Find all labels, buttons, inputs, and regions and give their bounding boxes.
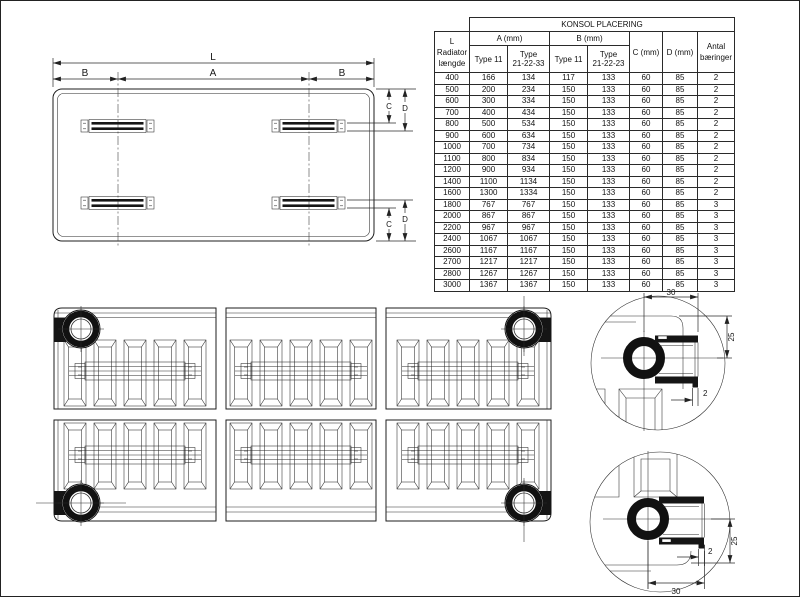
table-cell: 85 xyxy=(663,153,698,165)
table-cell: 1100 xyxy=(435,153,470,165)
table-cell: 133 xyxy=(588,165,630,177)
detail-bottom-dim-25: 25 xyxy=(730,536,739,545)
col-group-a: A (mm) xyxy=(470,32,550,46)
table-cell: 133 xyxy=(588,130,630,142)
table-cell: 1134 xyxy=(508,176,550,188)
table-row: 200086786715013360853 xyxy=(435,211,735,223)
table-cell: 1300 xyxy=(470,188,508,200)
konsol-table-body: 4001661341171336085250020023415013360852… xyxy=(435,73,735,292)
table-cell: 166 xyxy=(470,73,508,85)
table-cell: 60 xyxy=(630,211,663,223)
table-cell: 150 xyxy=(550,142,588,154)
table-cell: 1800 xyxy=(435,199,470,211)
table-cell: 2700 xyxy=(435,257,470,269)
table-cell: 800 xyxy=(435,119,470,131)
radiator-plan-view: L B A B C D xyxy=(26,41,426,271)
dim-label-c-bottom: C xyxy=(386,220,392,229)
table-cell: 85 xyxy=(663,199,698,211)
bracket-detail-callouts: 30 25 2 xyxy=(579,289,800,597)
table-row: 80050053415013360852 xyxy=(435,119,735,131)
table-cell: 60 xyxy=(630,234,663,246)
table-cell: 600 xyxy=(435,96,470,108)
table-cell: 150 xyxy=(550,234,588,246)
detail-top-background xyxy=(583,316,683,436)
table-row: 26001167116715013360853 xyxy=(435,245,735,257)
table-cell: 1367 xyxy=(508,280,550,292)
table-cell: 85 xyxy=(663,84,698,96)
table-row: 70040043415013360852 xyxy=(435,107,735,119)
table-cell: 150 xyxy=(550,165,588,177)
table-cell: 867 xyxy=(508,211,550,223)
table-cell: 133 xyxy=(588,153,630,165)
detail-bottom-background xyxy=(591,451,691,571)
table-cell: 133 xyxy=(588,176,630,188)
table-cell: 2 xyxy=(698,73,735,85)
table-cell: 400 xyxy=(435,73,470,85)
detail-bottom-bracket-profile xyxy=(603,451,729,589)
table-cell: 60 xyxy=(630,199,663,211)
table-cell: 600 xyxy=(470,130,508,142)
sub-header-b-type21: Type 21-22-23 xyxy=(588,46,630,73)
table-cell: 434 xyxy=(508,107,550,119)
konsol-placering-table: KONSOL PLACERING L Radiator længde A (mm… xyxy=(434,17,735,292)
table-cell: 150 xyxy=(550,119,588,131)
elevation-panel-middle xyxy=(226,308,376,521)
detail-top-dim-30: 30 xyxy=(667,288,676,297)
table-cell: 2 xyxy=(698,153,735,165)
table-row: 180076776715013360853 xyxy=(435,199,735,211)
table-cell: 150 xyxy=(550,96,588,108)
table-cell: 900 xyxy=(435,130,470,142)
table-row: 110080083415013360852 xyxy=(435,153,735,165)
table-cell: 1267 xyxy=(508,268,550,280)
table-cell: 2600 xyxy=(435,245,470,257)
table-cell: 2400 xyxy=(435,234,470,246)
table-cell: 85 xyxy=(663,142,698,154)
table-row: 40016613411713360852 xyxy=(435,73,735,85)
table-cell: 1334 xyxy=(508,188,550,200)
table-cell: 800 xyxy=(470,153,508,165)
table-cell: 700 xyxy=(470,142,508,154)
table-cell: 85 xyxy=(663,268,698,280)
table-row: 100070073415013360852 xyxy=(435,142,735,154)
table-cell: 60 xyxy=(630,176,663,188)
table-cell: 3 xyxy=(698,234,735,246)
table-cell: 3 xyxy=(698,245,735,257)
table-cell: 150 xyxy=(550,153,588,165)
table-cell: 133 xyxy=(588,73,630,85)
table-cell: 2 xyxy=(698,165,735,177)
table-cell: 85 xyxy=(663,257,698,269)
detail-bottom-dim-2: 2 xyxy=(708,547,713,556)
sub-header-a-type21: Type 21-22-33 xyxy=(508,46,550,73)
col-header-antal: Antal bæringer xyxy=(698,32,735,73)
dim-label-b-left: B xyxy=(82,68,89,79)
table-cell: 3 xyxy=(698,222,735,234)
table-cell: 967 xyxy=(508,222,550,234)
sub-header-b-type11: Type 11 xyxy=(550,46,588,73)
table-cell: 2000 xyxy=(435,211,470,223)
table-row: 50020023415013360852 xyxy=(435,84,735,96)
table-cell: 967 xyxy=(470,222,508,234)
detail-bottom-dim-30: 30 xyxy=(672,587,681,596)
table-cell: 3 xyxy=(698,211,735,223)
table-cell: 150 xyxy=(550,257,588,269)
table-cell: 3 xyxy=(698,199,735,211)
col-header-c: C (mm) xyxy=(630,32,663,73)
table-cell: 2 xyxy=(698,119,735,131)
table-cell: 150 xyxy=(550,211,588,223)
elevation-panel-left xyxy=(36,306,216,526)
table-cell: 133 xyxy=(588,96,630,108)
table-cell: 1267 xyxy=(470,268,508,280)
table-cell: 334 xyxy=(508,96,550,108)
table-corner-spacer xyxy=(435,18,470,32)
table-cell: 85 xyxy=(663,234,698,246)
table-cell: 767 xyxy=(508,199,550,211)
detail-top-dim-2: 2 xyxy=(703,389,708,398)
col-header-d: D (mm) xyxy=(663,32,698,73)
dim-label-d-bottom: D xyxy=(402,215,408,224)
table-cell: 133 xyxy=(588,107,630,119)
table-cell: 700 xyxy=(435,107,470,119)
table-cell: 2 xyxy=(698,130,735,142)
table-cell: 867 xyxy=(470,211,508,223)
table-cell: 1217 xyxy=(470,257,508,269)
sub-header-a-type11: Type 11 xyxy=(470,46,508,73)
table-cell: 150 xyxy=(550,107,588,119)
dimension-cd-top: C D xyxy=(347,89,416,131)
table-cell: 1067 xyxy=(470,234,508,246)
table-row: 60030033415013360852 xyxy=(435,96,735,108)
table-cell: 1367 xyxy=(470,280,508,292)
table-cell: 60 xyxy=(630,245,663,257)
table-cell: 1200 xyxy=(435,165,470,177)
table-cell: 1167 xyxy=(508,245,550,257)
table-cell: 2 xyxy=(698,188,735,200)
table-row: 14001100113415013360852 xyxy=(435,176,735,188)
table-cell: 60 xyxy=(630,73,663,85)
table-cell: 2 xyxy=(698,96,735,108)
table-cell: 934 xyxy=(508,165,550,177)
table-cell: 234 xyxy=(508,84,550,96)
table-cell: 133 xyxy=(588,245,630,257)
table-row: 90060063415013360852 xyxy=(435,130,735,142)
table-cell: 60 xyxy=(630,142,663,154)
col-group-b: B (mm) xyxy=(550,32,630,46)
table-cell: 60 xyxy=(630,119,663,131)
radiator-body-outline xyxy=(53,89,374,241)
elevation-panel-right xyxy=(386,296,551,542)
table-cell: 2 xyxy=(698,107,735,119)
table-cell: 2 xyxy=(698,84,735,96)
table-cell: 133 xyxy=(588,234,630,246)
table-cell: 133 xyxy=(588,188,630,200)
dim-label-b-right: B xyxy=(339,68,346,79)
table-cell: 60 xyxy=(630,153,663,165)
table-cell: 534 xyxy=(508,119,550,131)
table-cell: 85 xyxy=(663,211,698,223)
table-cell: 300 xyxy=(470,96,508,108)
bracket-detail-bottom: 2 25 30 xyxy=(590,451,739,596)
table-cell: 500 xyxy=(470,119,508,131)
table-cell: 1400 xyxy=(435,176,470,188)
table-cell: 133 xyxy=(588,119,630,131)
table-cell: 85 xyxy=(663,107,698,119)
table-cell: 133 xyxy=(588,84,630,96)
table-cell: 85 xyxy=(663,96,698,108)
dim-label-l: L xyxy=(210,52,216,63)
table-cell: 200 xyxy=(470,84,508,96)
table-cell: 3000 xyxy=(435,280,470,292)
table-cell: 1067 xyxy=(508,234,550,246)
table-cell: 60 xyxy=(630,107,663,119)
table-cell: 2 xyxy=(698,142,735,154)
table-cell: 133 xyxy=(588,268,630,280)
table-row: 24001067106715013360853 xyxy=(435,234,735,246)
dim-label-d-top: D xyxy=(402,104,408,113)
table-cell: 150 xyxy=(550,130,588,142)
table-cell: 150 xyxy=(550,199,588,211)
table-row: 16001300133415013360852 xyxy=(435,188,735,200)
table-cell: 60 xyxy=(630,165,663,177)
table-cell: 1217 xyxy=(508,257,550,269)
table-cell: 150 xyxy=(550,222,588,234)
table-cell: 150 xyxy=(550,268,588,280)
table-title: KONSOL PLACERING xyxy=(470,18,735,32)
table-row: 28001267126715013360853 xyxy=(435,268,735,280)
table-cell: 60 xyxy=(630,257,663,269)
table-cell: 133 xyxy=(588,211,630,223)
detail-top-dim-25: 25 xyxy=(727,332,736,341)
table-cell: 133 xyxy=(588,222,630,234)
table-cell: 60 xyxy=(630,130,663,142)
table-cell: 2 xyxy=(698,176,735,188)
table-cell: 3 xyxy=(698,268,735,280)
table-cell: 60 xyxy=(630,188,663,200)
table-cell: 85 xyxy=(663,176,698,188)
table-cell: 134 xyxy=(508,73,550,85)
technical-drawing-page: L B A B C D xyxy=(0,0,800,597)
table-cell: 150 xyxy=(550,245,588,257)
table-cell: 734 xyxy=(508,142,550,154)
table-cell: 767 xyxy=(470,199,508,211)
table-cell: 150 xyxy=(550,84,588,96)
table-cell: 1100 xyxy=(470,176,508,188)
table-cell: 85 xyxy=(663,73,698,85)
table-cell: 500 xyxy=(435,84,470,96)
table-cell: 60 xyxy=(630,84,663,96)
col-header-length: L Radiator længde xyxy=(435,32,470,73)
table-cell: 2800 xyxy=(435,268,470,280)
table-cell: 1000 xyxy=(435,142,470,154)
dimension-cd-bottom: C D xyxy=(347,200,416,241)
table-cell: 634 xyxy=(508,130,550,142)
bracket-detail-top: 30 25 2 xyxy=(583,288,736,436)
table-cell: 85 xyxy=(663,188,698,200)
table-cell: 2200 xyxy=(435,222,470,234)
table-row: 220096796715013360853 xyxy=(435,222,735,234)
table-cell: 85 xyxy=(663,130,698,142)
table-cell: 60 xyxy=(630,96,663,108)
table-cell: 133 xyxy=(588,199,630,211)
table-cell: 133 xyxy=(588,257,630,269)
radiator-elevation-views xyxy=(21,296,566,546)
table-cell: 85 xyxy=(663,119,698,131)
dim-label-a: A xyxy=(210,68,217,79)
table-cell: 60 xyxy=(630,222,663,234)
table-cell: 400 xyxy=(470,107,508,119)
table-cell: 900 xyxy=(470,165,508,177)
table-cell: 834 xyxy=(508,153,550,165)
table-cell: 1167 xyxy=(470,245,508,257)
table-cell: 85 xyxy=(663,165,698,177)
table-cell: 85 xyxy=(663,222,698,234)
table-cell: 133 xyxy=(588,142,630,154)
table-cell: 150 xyxy=(550,188,588,200)
table-row: 120090093415013360852 xyxy=(435,165,735,177)
table-cell: 85 xyxy=(663,245,698,257)
table-cell: 60 xyxy=(630,268,663,280)
table-cell: 117 xyxy=(550,73,588,85)
dimension-bab: B A B xyxy=(53,68,374,79)
table-cell: 3 xyxy=(698,257,735,269)
dim-label-c-top: C xyxy=(386,102,392,111)
table-cell: 1600 xyxy=(435,188,470,200)
table-cell: 150 xyxy=(550,176,588,188)
table-row: 27001217121715013360853 xyxy=(435,257,735,269)
